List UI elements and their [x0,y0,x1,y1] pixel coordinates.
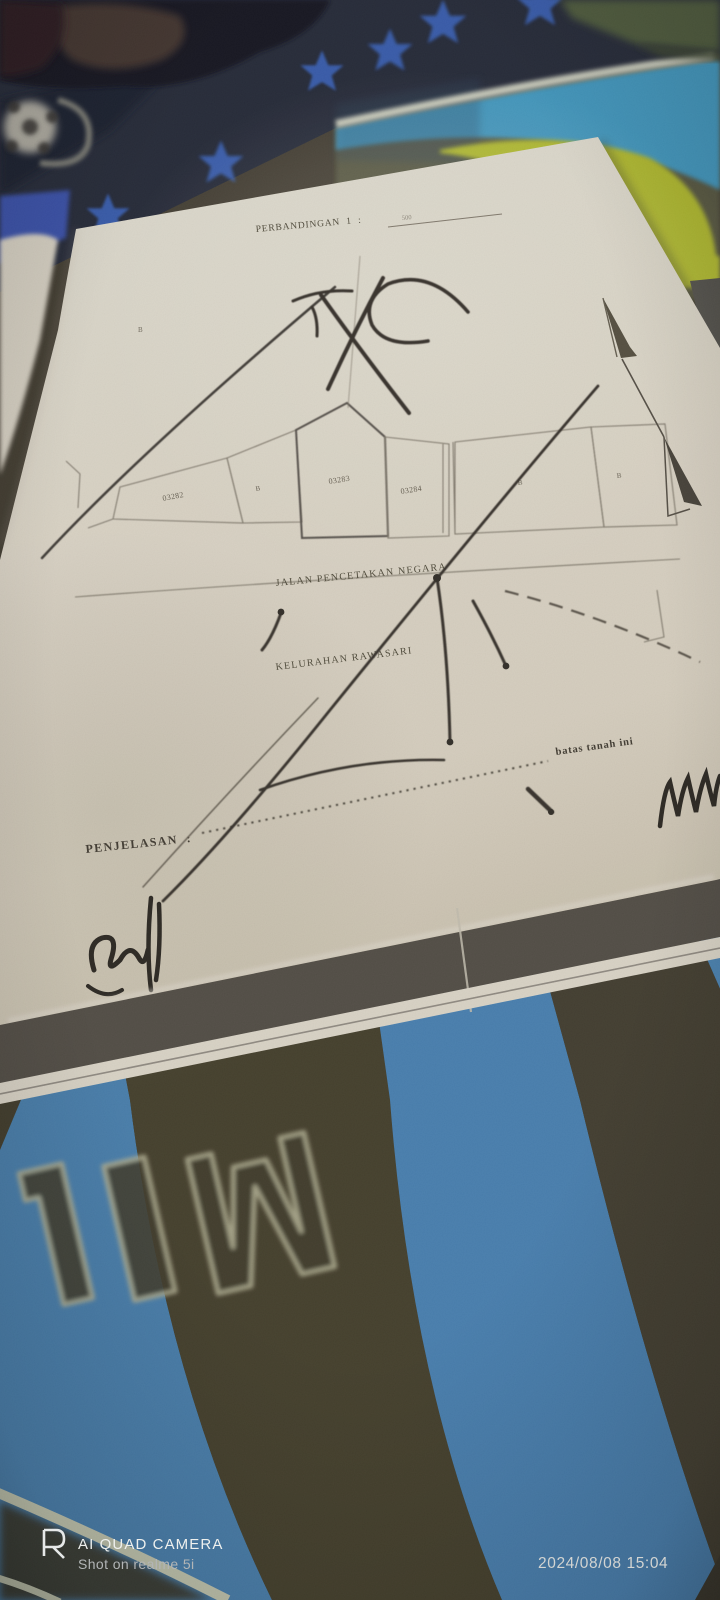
svg-text:Shot on realme 5i: Shot on realme 5i [78,1556,195,1572]
svg-text:2024/08/08 15:04: 2024/08/08 15:04 [538,1555,668,1572]
svg-text:AI QUAD CAMERA: AI QUAD CAMERA [78,1536,223,1553]
